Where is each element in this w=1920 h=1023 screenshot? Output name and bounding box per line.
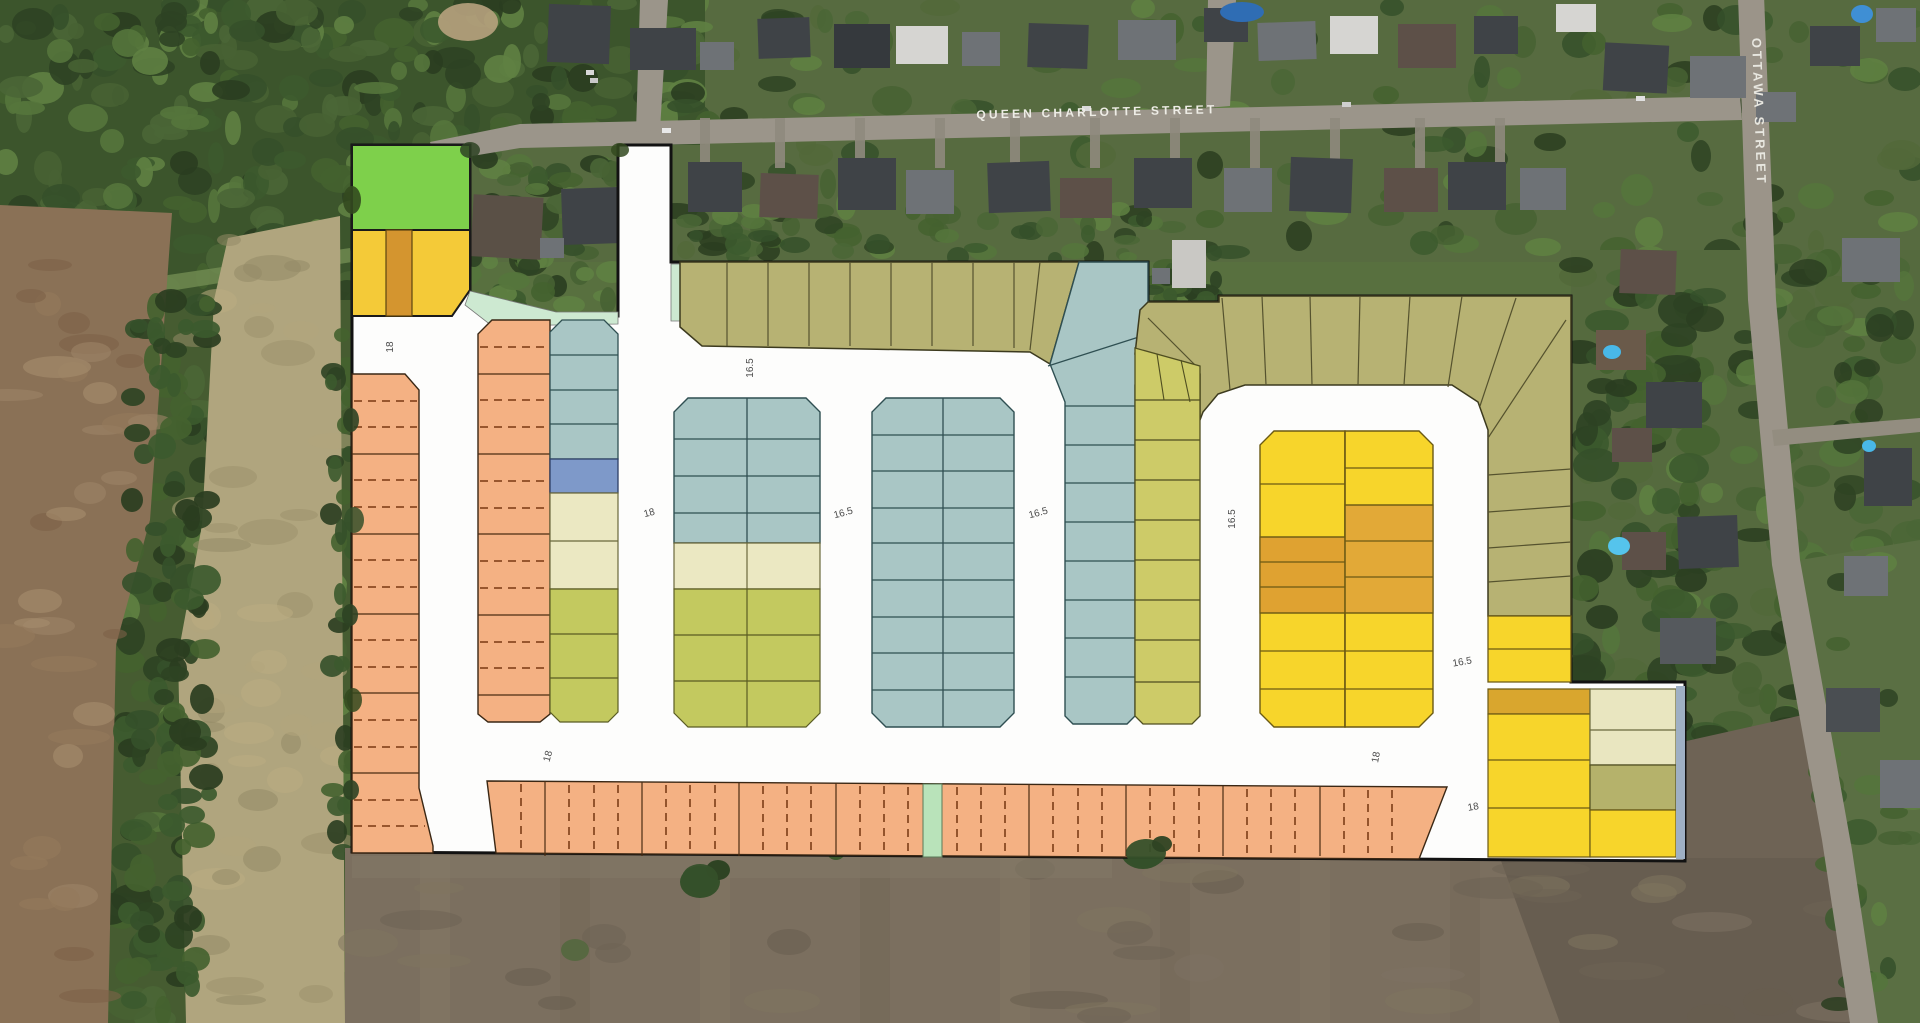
svg-text:18: 18 xyxy=(385,341,396,353)
svg-text:16.5: 16.5 xyxy=(1227,509,1238,529)
svg-text:16.5: 16.5 xyxy=(745,358,756,378)
